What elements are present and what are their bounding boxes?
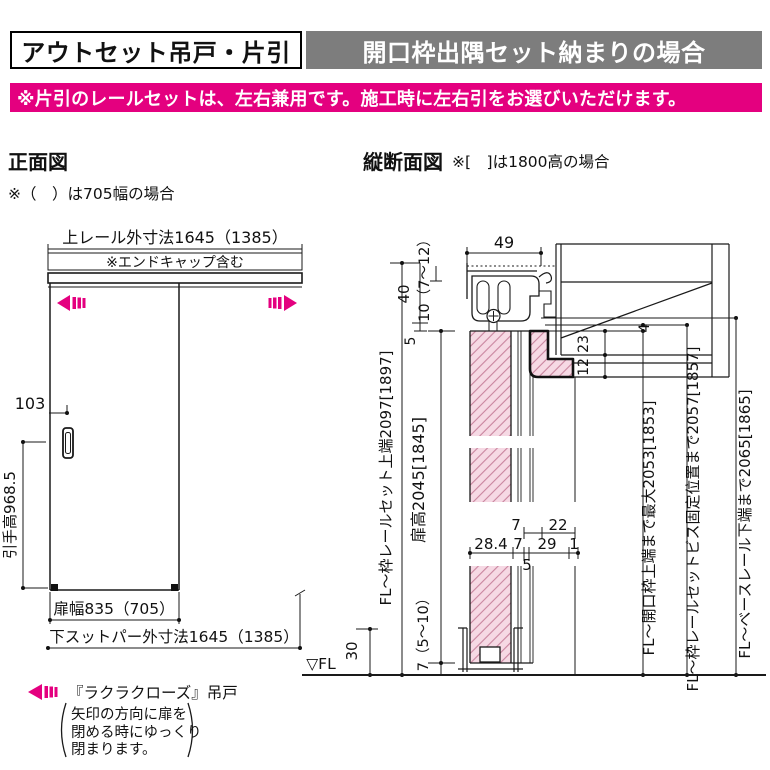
note-paren-left	[62, 703, 67, 757]
dim-fl-frame-top: FL～開口枠上端まで最大2053[1853]	[640, 400, 658, 655]
dim-rail-height: 40	[395, 284, 413, 303]
slide-direction-arrow-left	[57, 295, 86, 311]
dim-handle-height: 引手高968.5	[1, 471, 19, 559]
dim-28-4: 28.4	[474, 535, 507, 553]
legend-note-3: 閉まります。	[71, 741, 157, 758]
dim-gap-rail-door: 5	[403, 337, 419, 346]
dim-22: 22	[548, 516, 567, 534]
dim-bottom-stopper: 下スットパー外寸法1645（1385）	[49, 628, 298, 646]
dim-7b: 7	[513, 535, 523, 553]
dim-endcap-note: ※エンドキャップ含む	[106, 255, 244, 271]
dim-clearance-top: 10（7～12）	[416, 232, 433, 322]
dim-gap-floor: 7（5～10）	[415, 591, 432, 671]
dim-door-width: 扉幅835（705）	[53, 600, 174, 618]
legend-note-2: 閉める時にゆっくり	[71, 724, 202, 741]
dim-offset-4: 4	[637, 323, 653, 332]
dim-door-height: 扉高2045[1845]	[409, 417, 428, 543]
catalog-page: { "header": { "title_left": "アウトセット吊戸・片引…	[0, 0, 770, 770]
rail-assembly	[467, 263, 556, 331]
door-stopper-left	[51, 584, 58, 591]
dim-29: 29	[537, 535, 556, 553]
dim-103: 103	[15, 394, 46, 413]
fl-mark: ▽FL	[306, 655, 336, 673]
slide-direction-arrow-right	[269, 295, 298, 311]
front-view-drawing	[21, 244, 305, 757]
front-view-labels: 上レール外寸法1645（1385） ※エンドキャップ含む 103 引手高968.…	[1, 228, 299, 758]
dim-top-rail: 上レール外寸法1645（1385）	[62, 228, 287, 247]
dim-1: 1	[569, 535, 579, 553]
dim-frame-12: 12	[576, 358, 592, 376]
dim-rail-width: 49	[494, 233, 514, 252]
legend-label: 『ラクラクローズ』吊戸	[68, 684, 238, 702]
dim-guide-height: 30	[343, 641, 361, 660]
dim-frame-23: 23	[576, 335, 592, 353]
door-stopper-right	[171, 584, 178, 591]
door-section	[470, 331, 533, 663]
drawing-canvas: 上レール外寸法1645（1385） ※エンドキャップ含む 103 引手高968.…	[0, 0, 770, 770]
soft-close-arrow-icon	[28, 684, 58, 700]
dim-fl-base-rail: FL～ベースレール下端まで2065[1865]	[736, 389, 754, 658]
legend-note-1: 矢印の方向に扉を	[71, 706, 187, 723]
dim-7a: 7	[511, 516, 521, 534]
dim-fl-screw-pos: FL～枠レールセットビス固定位置まで2057[1857]	[684, 346, 702, 691]
top-rail-bar	[48, 273, 302, 283]
dim-5: 5	[522, 556, 532, 574]
corner-frame-piece	[530, 331, 573, 377]
dim-fl-rail-top: FL～枠レールセット上端2097[1897]	[377, 350, 395, 605]
